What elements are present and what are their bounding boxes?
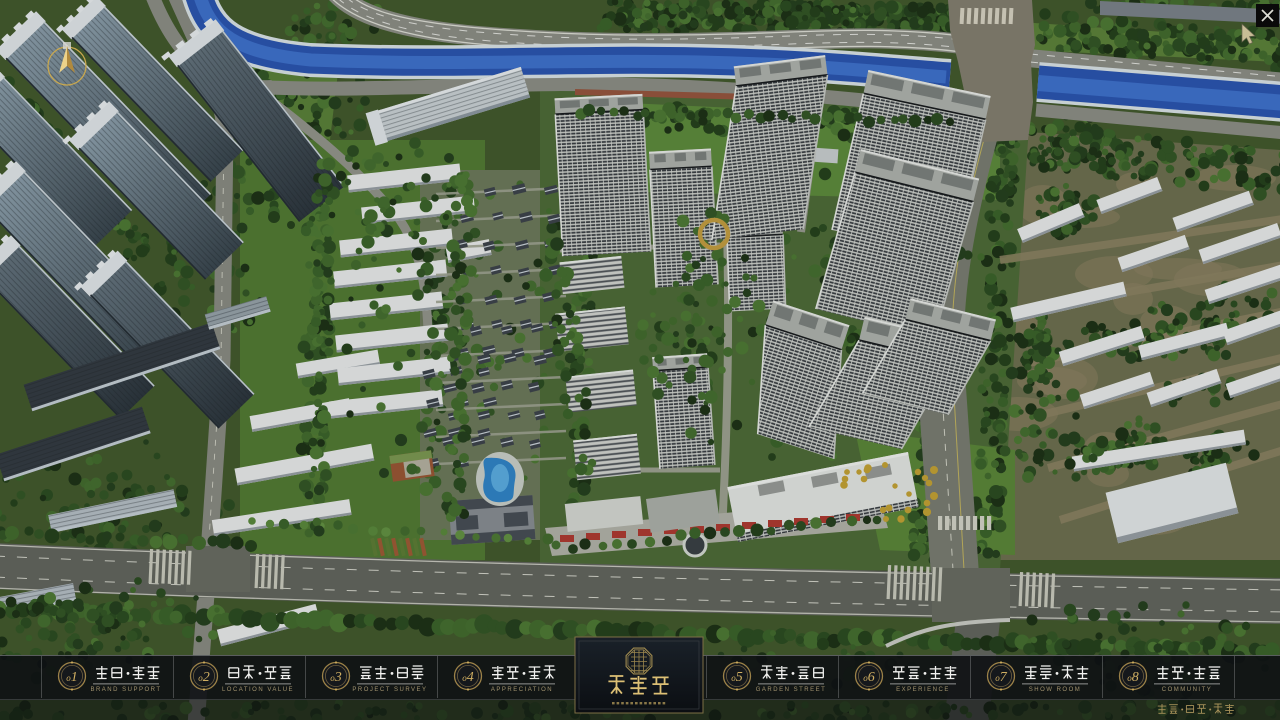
svg-text:o6: o6: [863, 670, 875, 685]
svg-text:GARDEN STREET: GARDEN STREET: [756, 687, 827, 693]
svg-text:o7: o7: [995, 670, 1008, 685]
svg-text:PROJECT SURVEY: PROJECT SURVEY: [352, 687, 427, 693]
svg-text:o1: o1: [66, 670, 78, 685]
svg-text:o8: o8: [1127, 670, 1139, 685]
svg-text:COMMUNITY: COMMUNITY: [1162, 687, 1213, 693]
svg-text:o3: o3: [330, 670, 342, 685]
svg-text:SHOW ROOM: SHOW ROOM: [1029, 687, 1082, 693]
svg-text:EXPERIENCE: EXPERIENCE: [896, 687, 950, 693]
svg-text:LOCATION VALUE: LOCATION VALUE: [222, 687, 294, 693]
svg-text:BRAND SUPPORT: BRAND SUPPORT: [90, 687, 161, 693]
svg-text:o4: o4: [462, 670, 474, 685]
svg-text:o2: o2: [198, 670, 210, 685]
svg-text:o5: o5: [731, 670, 743, 685]
svg-text:APPRECIATION: APPRECIATION: [491, 687, 553, 693]
